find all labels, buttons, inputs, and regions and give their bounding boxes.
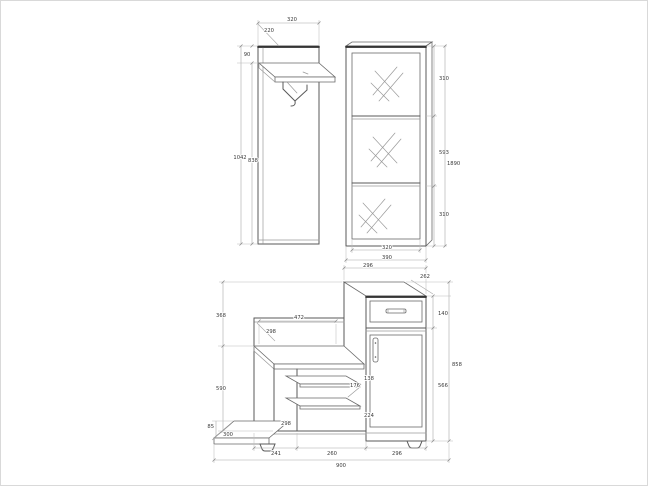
dim-label-bottom-right: 296	[392, 451, 402, 457]
dim-label-chest-height: 858	[452, 362, 462, 368]
panel-height-dimensions: 90 1042 838	[233, 45, 258, 246]
dim-label-cabinet-width: 390	[382, 255, 392, 261]
dim-label-gap-bottom: 224	[364, 413, 375, 419]
dim-label-plinth-depth: 300	[223, 432, 233, 438]
dim-label-bottom-left: 241	[271, 451, 281, 457]
dim-label-shelf-depth: 220	[264, 28, 274, 34]
chest-drawer	[370, 301, 422, 322]
dim-label-gap-top: 138	[364, 376, 374, 382]
dim-label-section-bottom: 310	[439, 212, 449, 218]
dim-label-plinth-height: 85	[207, 424, 214, 430]
dim-label-section-top: 310	[439, 76, 449, 82]
dim-label-seat-depth: 298	[266, 329, 276, 335]
shelf-depth-dimension: 220	[258, 24, 279, 46]
furniture-technical-drawing: 320 220 90 1042 838	[0, 0, 648, 486]
dim-label-panel-height: 1042	[233, 155, 246, 161]
dim-label-panel-lower-height: 838	[248, 158, 258, 164]
bench-seat	[254, 346, 364, 369]
bench-cabinet-drawing: 296 262 140 566 858	[207, 263, 462, 469]
dim-label-lower-left: 590	[216, 386, 226, 392]
door-handle	[373, 338, 378, 362]
dim-label-top-offset: 90	[244, 52, 251, 58]
cabinet-top-face	[346, 42, 432, 46]
foot-left	[260, 444, 275, 451]
tall-cabinet-drawing: 310 593 310 1890 320 390	[345, 42, 461, 263]
dim-label-panel-width: 320	[287, 17, 297, 23]
dim-label-door-height: 566	[438, 383, 448, 389]
chest-top-face	[344, 282, 426, 296]
drawer-handle	[386, 309, 406, 313]
wall-panel-drawing: 320 220 90 1042 838	[233, 17, 335, 246]
chest-door	[370, 335, 422, 427]
dim-label-drawer-height: 140	[438, 311, 448, 317]
cabinet-side-face	[426, 42, 432, 246]
dim-label-niche-width: 298	[281, 421, 291, 427]
foot-right	[407, 441, 422, 448]
dim-label-bottom-middle: 260	[327, 451, 337, 457]
seat-dimensions: 472 298	[257, 315, 338, 344]
dim-label-gap-middle: 176	[350, 383, 360, 389]
dim-label-upper-left: 368	[216, 313, 226, 319]
drawing-svg: 320 220 90 1042 838	[1, 1, 648, 486]
dim-label-cabinet-height: 1890	[447, 161, 460, 167]
dim-label-seat-width: 472	[294, 315, 304, 321]
dim-label-door-width: 320	[382, 245, 392, 251]
dim-label-column-width: 296	[363, 263, 373, 269]
dim-label-chest-depth: 262	[420, 274, 430, 280]
dim-label-section-middle: 593	[439, 150, 449, 156]
dim-label-total-width: 900	[336, 463, 346, 469]
